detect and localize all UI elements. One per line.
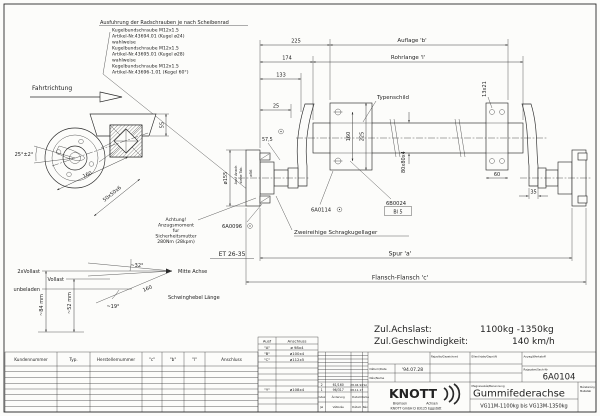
rev-label-aenderung: Änderung xyxy=(332,394,345,399)
dim-tube-50x50: 50x50x6 xyxy=(102,185,123,203)
ausf-row-b: "B" xyxy=(264,351,270,356)
direction-label: Fahrtrichtung xyxy=(32,85,72,92)
rev2-change: 96/317 xyxy=(333,388,344,392)
dim-57-5: 57,5 xyxy=(262,137,273,143)
rev-label-datum: Datum xyxy=(352,395,361,399)
ausf-table: Ausf Anschluss "A" ø 98x4 "B" ø100x4 "C"… xyxy=(258,337,318,412)
stud-note-title: Ausfuhrung der Radschrauben je nach Sche… xyxy=(100,20,229,26)
field-date-label: Dátum/Date xyxy=(370,367,387,371)
rev1-name: Sz xyxy=(364,383,368,387)
dim-25: 25 xyxy=(273,104,279,110)
drawing-canvas: Ausfuhrung der Radschrauben je nach Sche… xyxy=(0,0,600,416)
dim-arm-160: 160 xyxy=(82,170,93,179)
technical-drawing-page: Ausfuhrung der Radschrauben je nach Sche… xyxy=(0,0,600,416)
note-siehe-tab: siehe Tab. xyxy=(239,167,243,184)
stud-note-line: Artikel-Nr.43695.01 (Kugel ø28) xyxy=(112,52,185,58)
dim-rohrlange-l: Rohrlange 'l' xyxy=(391,55,425,61)
torque-note-line: Sicherheitsmutter xyxy=(155,234,196,240)
label-schwinghebel: Schwinghebel Länge xyxy=(168,295,220,301)
col-typ: Typ. xyxy=(68,357,77,362)
rev2-index: 1 xyxy=(321,388,323,392)
dim-225: 225 xyxy=(291,39,301,45)
ausf-row-a-val: ø 98x4 xyxy=(290,345,304,350)
field-docno-label: Rajzszám/Sach-Nr xyxy=(524,368,549,372)
scale-label-de: Maßstab xyxy=(580,389,591,393)
col-l: "l" xyxy=(192,357,197,362)
rev-label-name: Name xyxy=(362,395,370,399)
stud-note-line: Kugelbundschraube M12x1.5 xyxy=(112,46,179,52)
ausf-row-c: "C" xyxy=(264,357,270,362)
part-bl5: Bl 5 xyxy=(393,209,402,215)
ausf-header: Ausf xyxy=(263,339,272,344)
field-material-label: Anyag/Werkstoff xyxy=(524,355,546,359)
torque-note-line: Anzugsmoment xyxy=(158,223,194,229)
field-drawn-label: Rajzolta/Gezeichnet xyxy=(431,355,458,359)
stud-note-line: Artikel-Nr.43696-1.01 (Kegel 60°) xyxy=(112,70,189,76)
rev-label-jel: Jel xyxy=(319,405,323,409)
ausf-row-b-val: ø100x4 xyxy=(290,351,305,356)
field-name-label: Név/Name xyxy=(370,376,385,380)
torque-note-line: fur xyxy=(173,228,180,234)
rev-label-valtozas: Változás xyxy=(333,405,345,409)
dim-174: 174 xyxy=(282,56,292,62)
stud-note-line: Kegelbundschraube M12x1.5 xyxy=(112,64,179,70)
ausf-row-y: "Y" xyxy=(264,387,270,392)
rating-speed-label: Zul.Geschwindigkeit: xyxy=(374,337,468,347)
field-checked-label: Ellenőrizte/Geprüft xyxy=(472,355,497,359)
label-typenschild: Typenschild xyxy=(376,95,409,101)
drawing-range: VG11M-1100kg bis VG13M-1350kg xyxy=(480,404,568,410)
label-unbeladen: unbeladen xyxy=(14,287,40,293)
dim-arm-len-160: 160 xyxy=(142,284,153,293)
rev1-change: 61/160 xyxy=(333,383,344,387)
label-2xvollast: 2xVollast xyxy=(17,269,40,275)
col-anschluss: Anschluss xyxy=(221,357,242,362)
dim-arm-angle: 25°±2° xyxy=(15,152,34,158)
rev-label-datum-hu: Dátum xyxy=(352,405,361,409)
wheel-stud xyxy=(578,153,587,160)
dimensions-bottom: Spur 'a' Flansch-Flansch 'c' xyxy=(246,208,586,285)
title-block: 2 61/160 28.04.94 Sz 1 96/317 08.11.17 I… xyxy=(318,352,596,412)
swing-arm-left xyxy=(297,104,314,186)
rating-load-value: 1100kg -1350kg xyxy=(480,325,554,335)
torque-note-line: Achtung! xyxy=(166,217,187,223)
dim-133: 133 xyxy=(276,73,286,79)
dim-55: 55 xyxy=(160,122,166,128)
customer-table: Kundennummer Typ. Herstellernummer "c" "… xyxy=(5,352,258,412)
dim-bracket-225: 225 xyxy=(360,132,366,142)
ausf-row-a: "A" xyxy=(264,345,270,350)
col-herstellernummer: Herstellernummer xyxy=(97,357,135,362)
dim-dia56: ø56 xyxy=(248,169,253,177)
logo-text: KNOTT xyxy=(389,386,438,401)
doc-number: 6A0104 xyxy=(543,373,576,383)
logo-address: KNOTT GmbH D 83125 Eggstätt xyxy=(391,407,443,411)
label-mitte-achse: Mitte Achse xyxy=(178,269,207,275)
ratings: Zul.Achslast: 1100kg -1350kg Zul.Geschwi… xyxy=(374,325,555,347)
rev-label-nev: Név xyxy=(363,405,368,409)
rev2-date: 08.11.17 xyxy=(350,388,363,392)
logo-arc xyxy=(449,386,453,402)
torque-note-line: 280Nm (28kpm) xyxy=(157,239,195,245)
suspension-diagram: 2xVollast Vollast unbeladen ~32° ~19° Mi… xyxy=(14,259,220,332)
dim-52mm: ~52 mm xyxy=(67,292,73,314)
rating-load-label: Zul.Achslast: xyxy=(374,325,432,335)
col-kundennummer: Kundennummer xyxy=(14,357,48,362)
dim-tube-80x80x4: 80x80x4 xyxy=(401,151,407,173)
stud-note-line: wahlweise xyxy=(112,40,136,46)
logo-arc xyxy=(444,388,447,400)
main-view xyxy=(238,103,592,206)
ausf-row-c-val: ø112x5 xyxy=(290,357,305,362)
dim-auflage-b: Auflage 'b' xyxy=(397,38,426,44)
knott-logo: KNOTT Bremsen Achsen KNOTT GmbH D 83125 … xyxy=(389,384,459,411)
logo-arc xyxy=(454,384,459,404)
mount-bracket-right xyxy=(486,103,508,170)
part-6a0114: 6A0114 xyxy=(311,208,332,214)
direction-arrowhead xyxy=(100,92,122,102)
dim-spur-a: Spur 'a' xyxy=(389,251,412,258)
label-bearing: Zweireihige Schragkugellager xyxy=(294,230,378,236)
part-6b0024: 6B0024 xyxy=(386,201,407,207)
dim-slot-13x21: 13x21 xyxy=(482,81,488,97)
logo-brand2: Achsen xyxy=(426,402,438,406)
rating-speed-value: 140 km/h xyxy=(512,337,555,347)
col-c: "c" xyxy=(149,357,155,362)
scale-label-hu: Méretarány xyxy=(580,385,595,389)
rev1-index: 2 xyxy=(321,383,323,387)
col-b: "b" xyxy=(170,357,177,362)
dim-angle-32: ~32° xyxy=(130,263,144,269)
rev1-date: 28.04.94 xyxy=(350,383,363,387)
note-ausf-ansch: Ausf Ansch xyxy=(234,166,238,185)
dim-angle-19: ~19° xyxy=(106,304,120,310)
dim-bracket-160: 160 xyxy=(346,132,352,142)
field-date-value: '94.07.28 xyxy=(402,367,423,373)
dim-et: ET 26-35 xyxy=(219,251,246,258)
anschluss-header: Anschluss xyxy=(288,339,307,344)
label-vollast: Vollast xyxy=(48,277,65,283)
stud-note-line: wahlweise xyxy=(112,58,136,64)
part-6a0096: 6A0096 xyxy=(222,224,242,230)
logo-brand1: Bremsen xyxy=(393,402,407,406)
ausf-row-y-val: ø108x4 xyxy=(290,387,305,392)
wheel-stud xyxy=(578,196,587,203)
swing-arm-right xyxy=(522,104,538,186)
dim-35: 35 xyxy=(530,190,536,196)
direction-arrow: Fahrtrichtung xyxy=(30,85,122,102)
dim-dia155: ø155 xyxy=(223,172,229,185)
field-title-label: Megnevezés/Benennung xyxy=(472,384,505,388)
dim-60: 60 xyxy=(494,172,500,178)
dim-flansch-c: Flansch-Flansch 'c' xyxy=(372,275,429,282)
rev-label-index: Index xyxy=(318,395,326,399)
front-view: 25°±2° 160 55 50x50x6 xyxy=(15,114,169,216)
drawing-title: Gummifederachse xyxy=(473,389,565,400)
dim-84mm: ~84 mm xyxy=(39,294,45,316)
stud-note-line: Kugelbundschraube M12x1.5 xyxy=(112,28,179,34)
stud-note-line: Artikel-Nr.43694.01 (Kugel ø24) xyxy=(112,34,185,40)
